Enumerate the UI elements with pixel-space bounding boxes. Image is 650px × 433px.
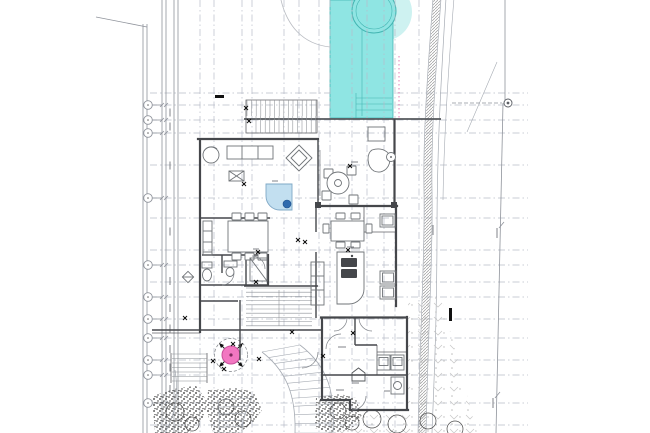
house-plan [152,100,441,410]
toilet-bowl [203,269,212,281]
dining-table [228,221,268,252]
dining-chair [258,213,267,220]
water-heater [391,377,404,394]
walkway-step [290,387,330,390]
spot-mark [211,359,215,363]
kitchen-counter [311,262,324,305]
walkway-step [262,345,300,352]
bathroom [202,258,267,281]
spot-mark [257,357,261,361]
patio-curve [281,0,330,47]
basin [226,268,234,277]
breakfast-chair [351,213,360,219]
spot-mark [231,342,235,346]
breakfast-chair [336,242,345,248]
lounge-chair-diamond [286,145,312,171]
dining-chair [245,213,254,220]
dining-chair [232,213,241,220]
breakfast-chair [336,213,345,219]
black-dash-marker [449,308,452,321]
spot-mark [296,238,300,242]
sink [341,269,357,278]
boundary-diagonal [96,17,147,27]
breakfast-chair [366,224,372,233]
spot-mark [303,240,307,244]
water-feature [266,184,292,210]
planter-box [368,127,385,141]
interior-walls [152,140,407,375]
dining-chair [232,253,241,260]
dining-chair [245,253,254,260]
floor-plan-canvas [0,0,650,433]
planting-bed [207,388,262,433]
column [391,202,397,208]
terrace-chair [349,195,358,204]
terrace-set [322,127,396,204]
water-feature-drain [283,200,291,208]
walkway-step [279,365,319,370]
planting-bed [152,386,208,433]
spot-mark [183,316,187,320]
walkway-step [284,372,324,376]
dining-set [228,213,268,260]
spot-mark [222,367,226,371]
diamond-marker [182,271,193,282]
spot-mark [242,182,246,186]
property-boundary-left [96,0,178,433]
column [315,202,321,208]
terrace-round-table [327,172,349,194]
sink-counter [224,261,237,267]
walkway-step [269,351,308,357]
breakfast-chair [323,224,329,233]
floor-plan-drawing [0,0,650,433]
sofa [227,146,273,159]
thin-walls [152,100,407,383]
breakfast-table [331,221,364,241]
property-line-lower [496,103,503,433]
black-dash-marker [215,95,224,98]
terrace-chair [322,191,331,200]
sink [341,258,357,267]
walkway-edge [262,352,295,433]
walkway-step [274,358,314,364]
grill-counter [368,149,390,172]
